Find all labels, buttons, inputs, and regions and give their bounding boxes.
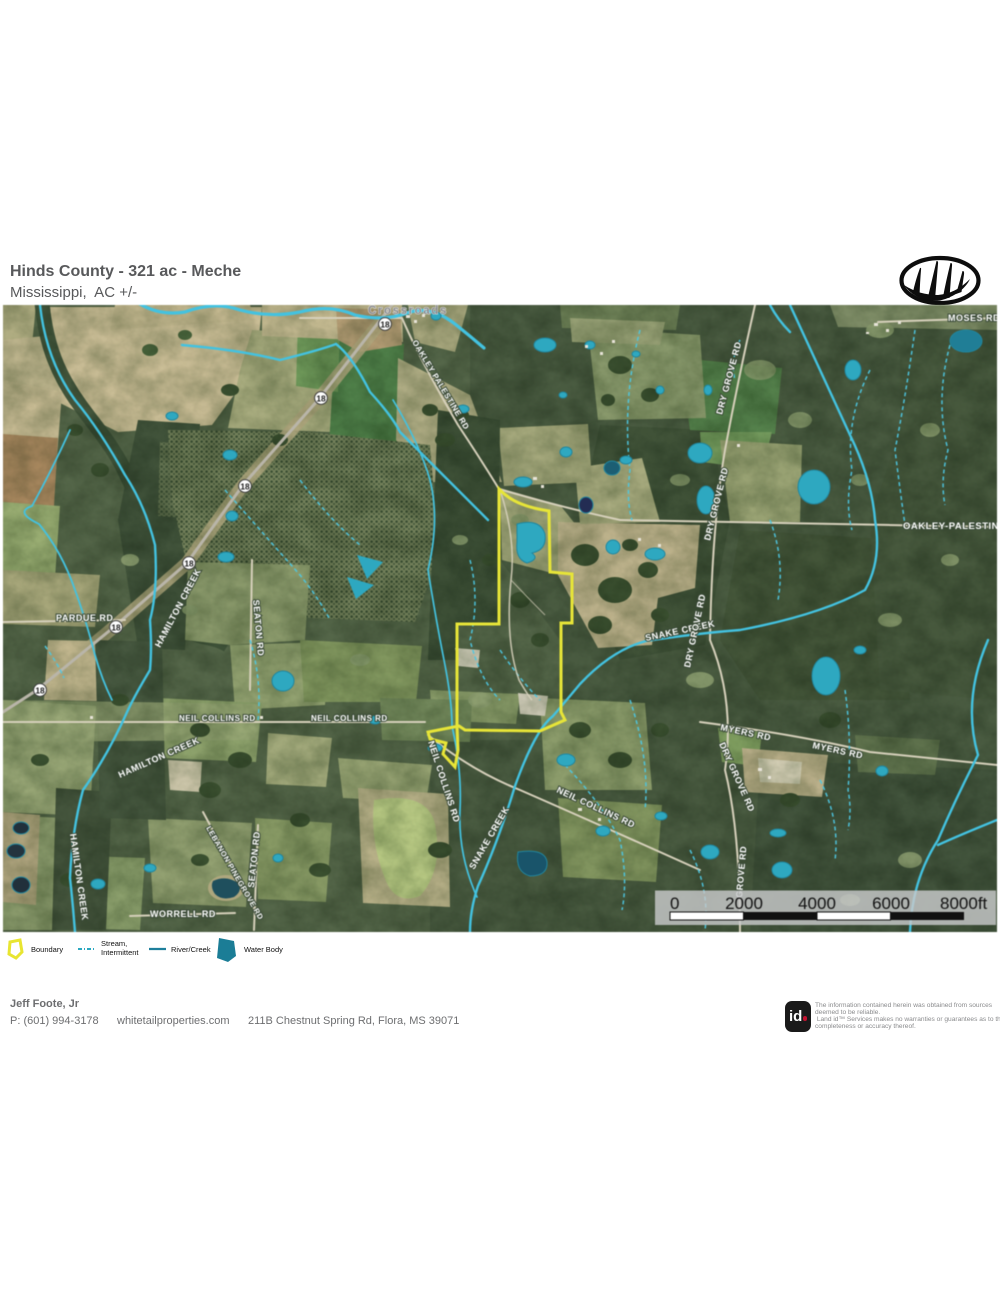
svg-text:River/Creek: River/Creek xyxy=(171,945,211,954)
svg-text:Intermittent: Intermittent xyxy=(101,948,139,957)
svg-text:2000: 2000 xyxy=(725,894,763,913)
svg-text:Boundary: Boundary xyxy=(31,945,63,954)
svg-text:6000: 6000 xyxy=(872,894,910,913)
svg-text:PARDUE RD: PARDUE RD xyxy=(56,613,113,623)
svg-text:Water Body: Water Body xyxy=(244,945,283,954)
svg-text:18: 18 xyxy=(240,482,250,492)
svg-text:18: 18 xyxy=(184,559,194,569)
svg-text:8000ft: 8000ft xyxy=(940,894,988,913)
svg-text:Stream,: Stream, xyxy=(101,939,127,948)
svg-text:0: 0 xyxy=(670,894,679,913)
svg-text:WORRELL RD: WORRELL RD xyxy=(150,909,216,919)
svg-text:Crossroads: Crossroads xyxy=(368,305,448,317)
svg-text:MOSES RD: MOSES RD xyxy=(948,313,997,323)
svg-text:18: 18 xyxy=(380,320,390,330)
svg-text:NEIL COLLINS RD: NEIL COLLINS RD xyxy=(311,714,388,723)
svg-text:18: 18 xyxy=(316,394,326,404)
svg-text:4000: 4000 xyxy=(798,894,836,913)
svg-text:18: 18 xyxy=(35,686,45,696)
svg-text:18: 18 xyxy=(111,623,121,633)
svg-text:OAKLEY-PALESTINE RD: OAKLEY-PALESTINE RD xyxy=(903,521,997,532)
svg-text:NEIL COLLINS RD: NEIL COLLINS RD xyxy=(179,714,256,723)
